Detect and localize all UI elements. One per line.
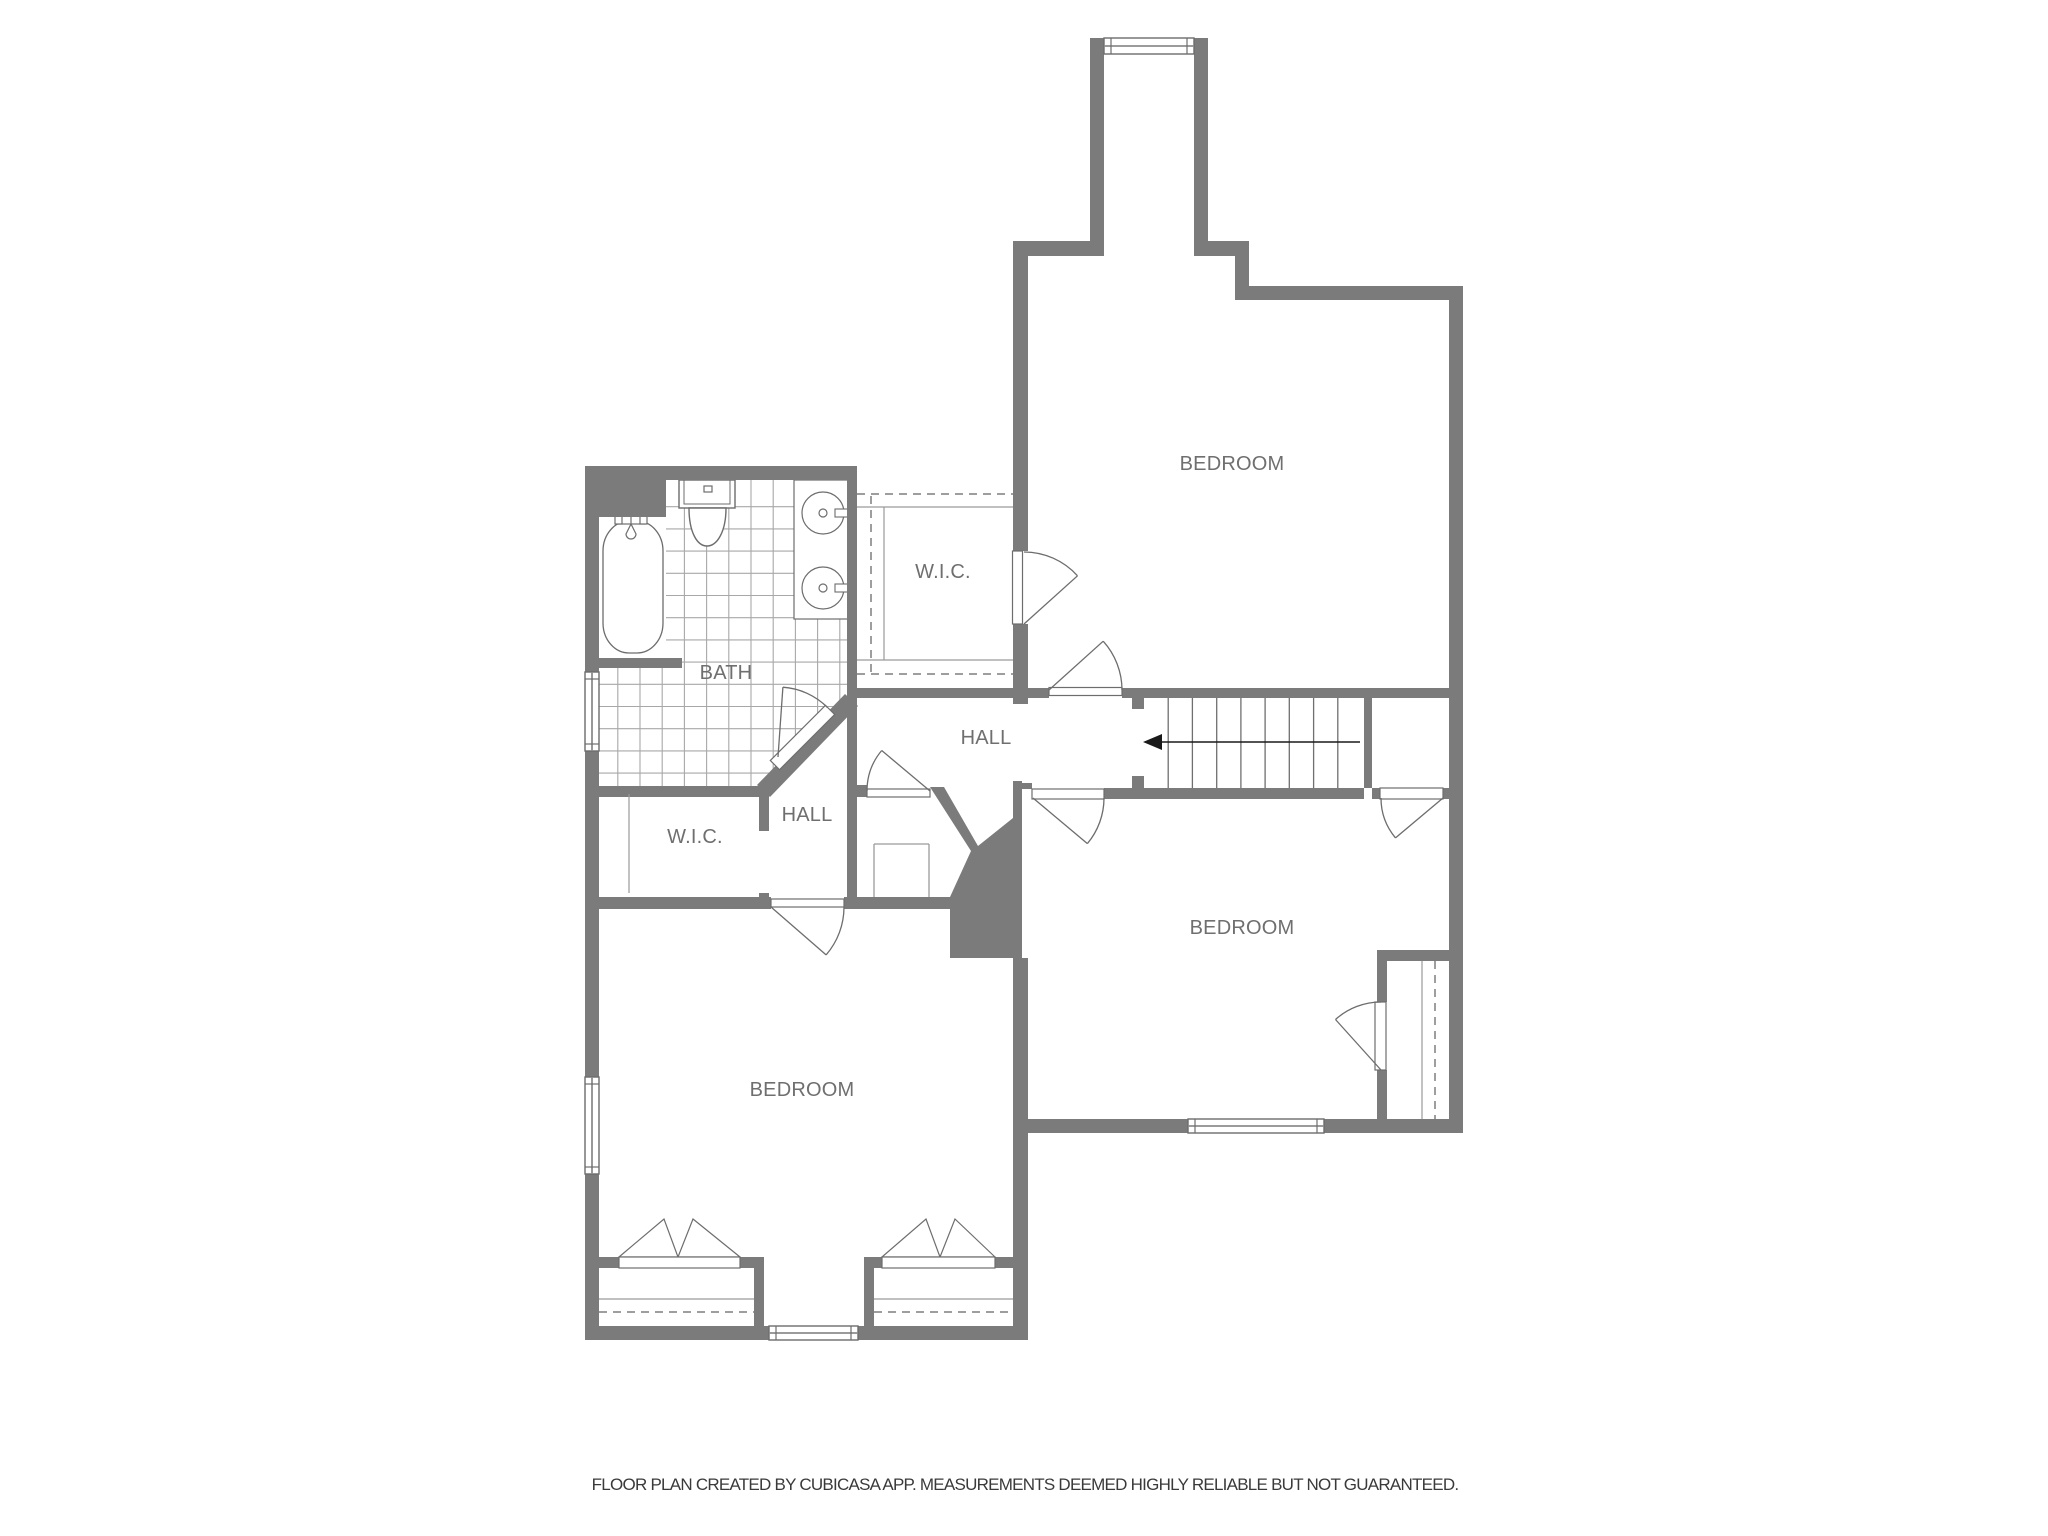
svg-text:BATH: BATH	[700, 662, 753, 684]
svg-text:HALL: HALL	[782, 804, 833, 826]
svg-text:W.I.C.: W.I.C.	[667, 826, 723, 848]
svg-text:BEDROOM: BEDROOM	[1190, 917, 1295, 939]
svg-text:BEDROOM: BEDROOM	[1180, 453, 1285, 475]
svg-text:W.I.C.: W.I.C.	[915, 561, 971, 583]
svg-text:BEDROOM: BEDROOM	[750, 1079, 855, 1101]
svg-text:HALL: HALL	[961, 727, 1012, 749]
svg-text:FLOOR PLAN CREATED BY CUBICASA: FLOOR PLAN CREATED BY CUBICASA APP. MEAS…	[592, 1475, 1459, 1494]
